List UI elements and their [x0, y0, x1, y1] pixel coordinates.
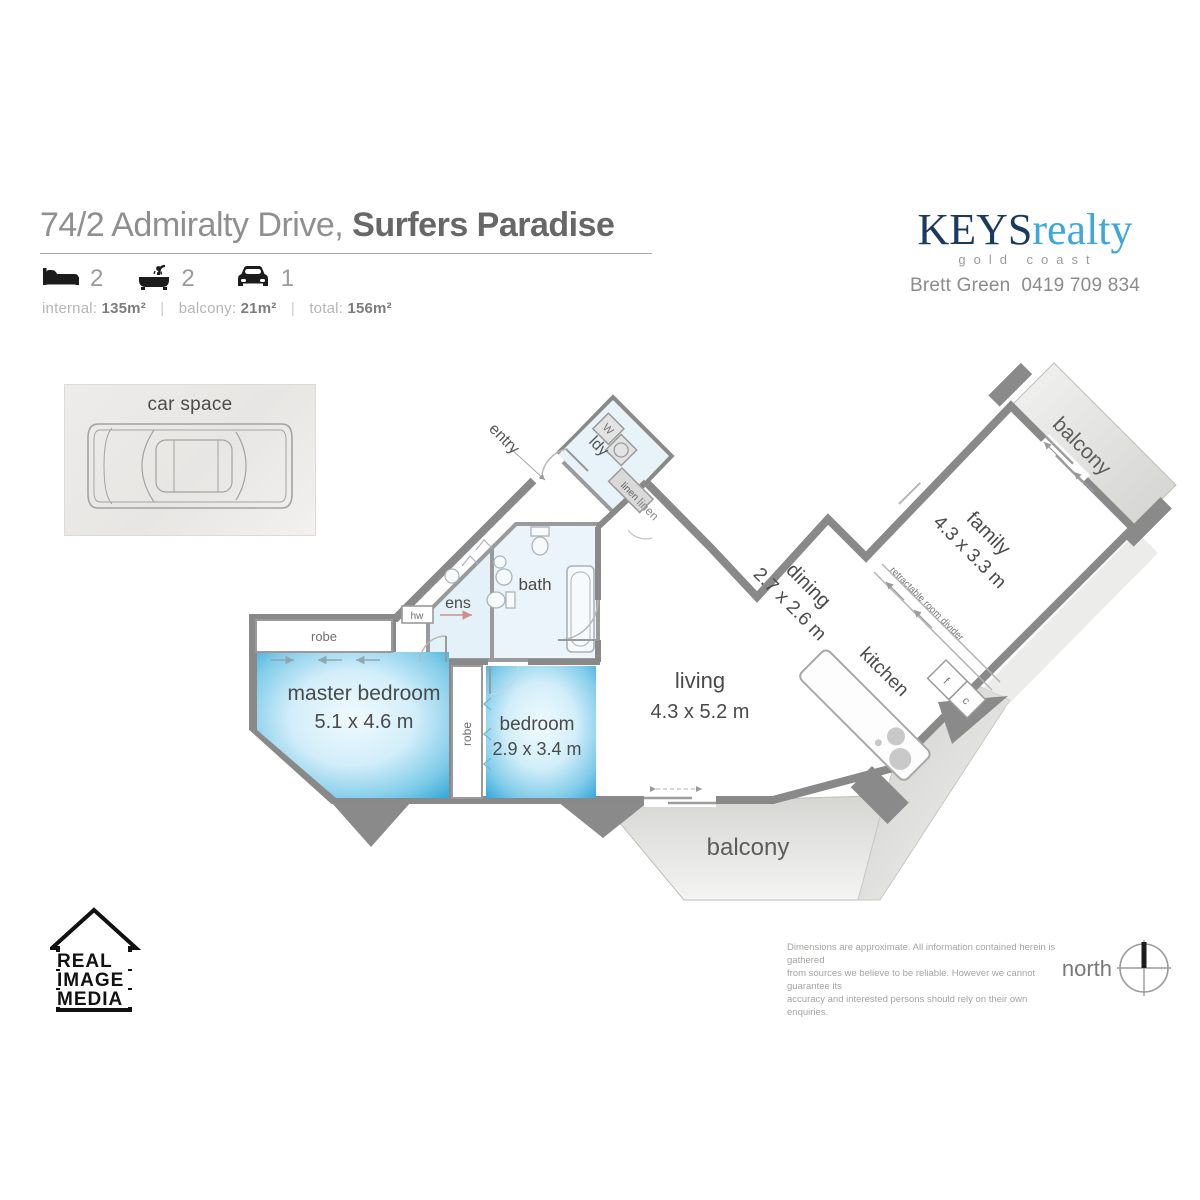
disclaimer-line-1: Dimensions are approximate. All informat…: [787, 941, 1065, 967]
bedroom-area: bedroom 2.9 x 3.4 m: [486, 666, 596, 798]
floorplan: balcony balcony: [0, 0, 1200, 1200]
shower-ens: [445, 569, 459, 583]
toilet-ens: [506, 592, 515, 608]
ens-label: ens: [445, 595, 471, 612]
master-bedroom-area: master bedroom 5.1 x 4.6 m: [257, 652, 449, 798]
balcony-bottom-label: balcony: [707, 834, 790, 861]
compass-icon: [1117, 940, 1171, 996]
north-indicator: north: [1040, 922, 1180, 1009]
master-bedroom-label: master bedroom: [288, 682, 441, 705]
media-logo: REAL IMAGE MEDIA: [50, 906, 160, 1019]
disclaimer-line-3: accuracy and interested persons should r…: [787, 993, 1065, 1019]
robe-bedroom-label: robe: [460, 722, 474, 746]
hw-label: hw: [411, 611, 425, 622]
entry-label: entry: [485, 420, 522, 457]
basin-ens: [494, 556, 506, 568]
north-label: north: [1062, 956, 1112, 981]
disclaimer-line-2: from sources we believe to be reliable. …: [787, 967, 1065, 993]
basin-bath: [496, 569, 512, 585]
bath-label: bath: [518, 575, 551, 594]
master-bedroom-dims: 5.1 x 4.6 m: [315, 711, 414, 733]
bedroom-label: bedroom: [500, 714, 575, 735]
media-line-3: MEDIA: [57, 989, 123, 1010]
robe-master-label: robe: [311, 629, 337, 644]
entry-label-group: entry: [485, 420, 522, 457]
living-label: living: [675, 668, 725, 693]
living-dims: 4.3 x 5.2 m: [651, 701, 750, 723]
media-line-1: REAL: [57, 951, 113, 972]
bedroom-dims: 2.9 x 3.4 m: [492, 739, 581, 759]
toilet-bath: [531, 527, 549, 536]
disclaimer: Dimensions are approximate. All informat…: [787, 941, 1065, 1019]
media-line-2: IMAGE: [57, 970, 124, 991]
